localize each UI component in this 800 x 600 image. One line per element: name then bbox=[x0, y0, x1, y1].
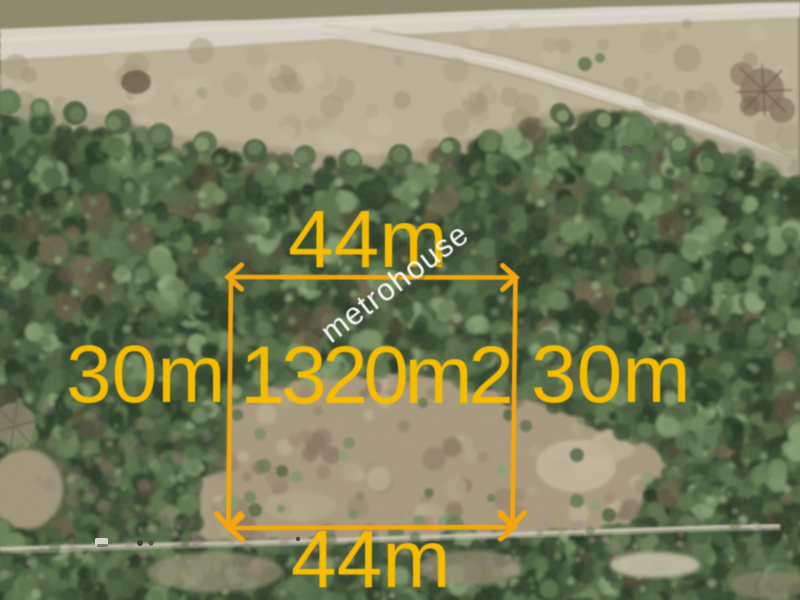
svg-text:30m: 30m bbox=[66, 329, 226, 420]
svg-text:1320m2: 1320m2 bbox=[240, 330, 510, 421]
svg-text:30m: 30m bbox=[531, 329, 691, 420]
svg-text:44m: 44m bbox=[291, 514, 451, 600]
